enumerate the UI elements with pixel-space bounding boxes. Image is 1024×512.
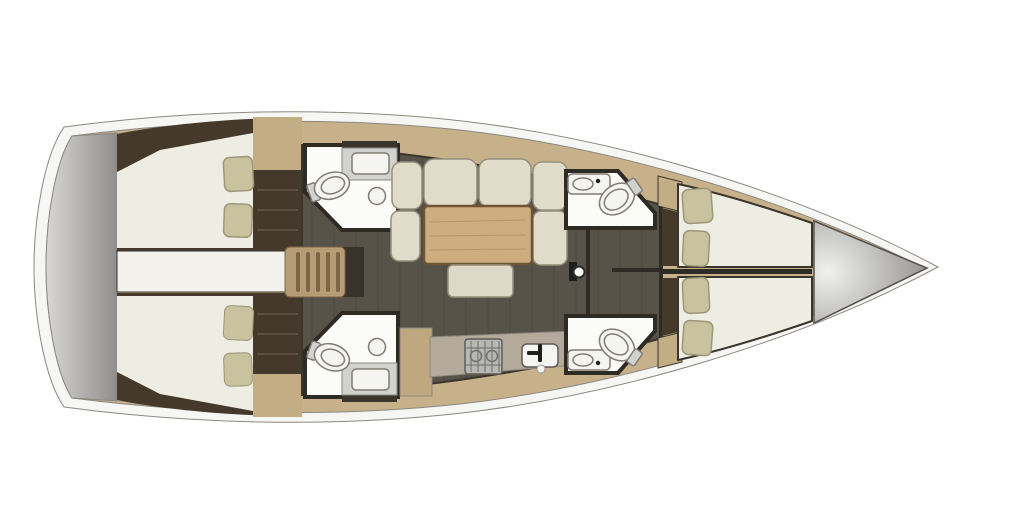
yacht-floor-plan [0,0,1024,512]
galley-sink-knob [537,365,545,373]
head-fwd-starboard-sink [568,350,610,370]
sofa-back-cushion [479,159,531,207]
head-aft-starboard-sink [369,339,386,356]
head-aft-starboard-basin [352,369,389,390]
saloon-bench [448,265,513,297]
sofa-back-cushion [533,162,567,210]
head-fwd-port-faucet [596,179,600,183]
galley-cabinet [400,328,432,396]
fwd-berth-centerline [662,269,812,274]
sofa-left-arm-cushion [391,211,420,261]
head-aft-port-sink [369,188,386,205]
head-fwd-port-sink [568,174,610,194]
companionway-steps [285,247,364,297]
fwd-cabin-starboard-locker-dark [662,278,678,336]
saloon-table [424,206,532,264]
mast-post [574,267,585,278]
aft-port-side-deck [253,117,302,170]
head-aft-port-basin [352,153,389,174]
sofa-right-arm-cushion [533,211,567,265]
fwd-cabin-port-locker-dark [662,208,678,266]
sofa-back-cushion [424,159,477,207]
head-fwd-starboard-faucet [596,361,600,365]
aft-starboard-side-deck [253,374,302,417]
sofa-back-cushion [392,162,422,209]
stern-corridor [117,251,287,292]
yacht-floor-plan-canvas [0,0,1024,512]
